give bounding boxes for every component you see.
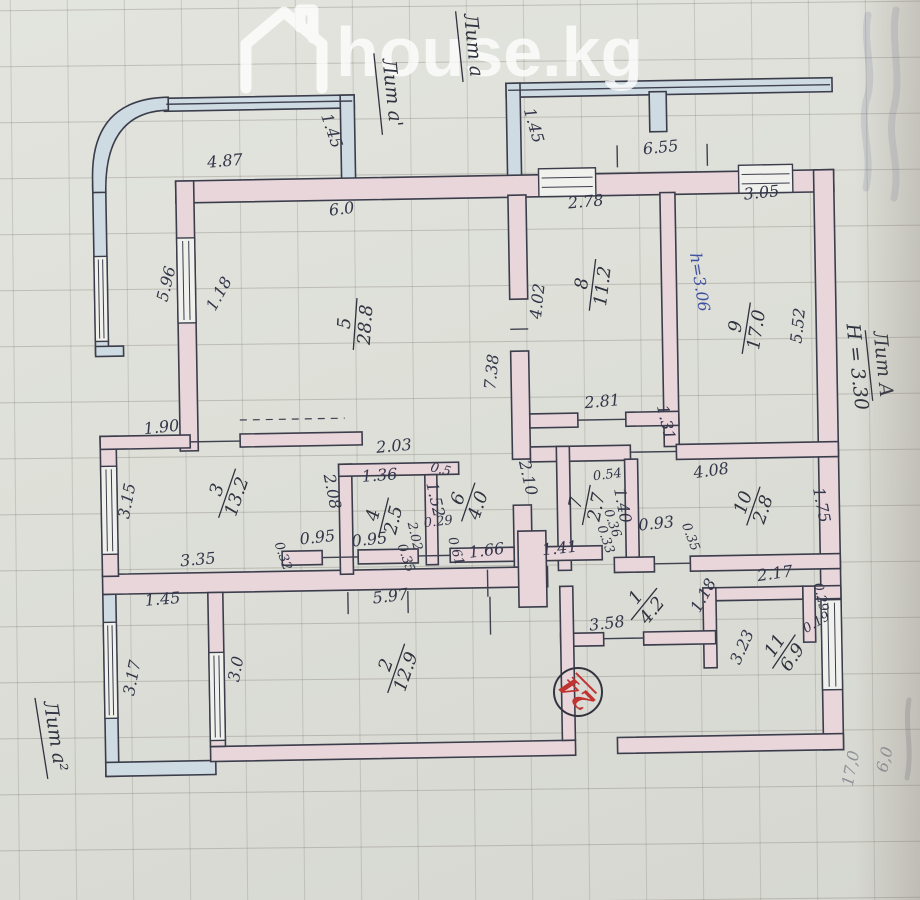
dimension-label: 5.52 [786,307,809,344]
room-number: 4 [362,507,385,524]
stamp: 24 [554,668,602,717]
dimension-label: 1.90 [143,416,180,439]
room-area: 28.8 [354,304,378,346]
ruled-line [0,841,920,851]
wall [508,195,528,299]
dimension-label: 0.35 [678,521,702,553]
detail-line [322,557,358,558]
room-area: 11.2 [590,265,616,307]
wall [560,586,576,740]
ruled-line [0,225,920,235]
dimension-label: 3.23 [726,627,758,667]
dimension-label: 3.35 [179,548,216,570]
dimension-label: 0.95 [299,526,336,549]
ruled-line [0,281,920,291]
watermark: house.kg [246,10,643,91]
balcony-wall [95,346,123,356]
dimension-label: 6.55 [642,136,679,159]
dimension-label: 7.38 [480,353,503,390]
curved-balcony-wall [91,97,170,192]
dimension-label: 4.87 [205,150,244,172]
dimension-label: 5.96 [153,264,180,303]
room-area: 4.0 [463,489,493,524]
room-number: 8 [571,277,593,291]
dimension-label: 5.97 [371,584,409,607]
detail-line [604,638,644,639]
wall [511,351,531,459]
dimension-label: 6.0 [328,198,356,220]
ruled-line [0,393,920,403]
window [94,256,108,341]
detail-line [490,597,491,635]
detail-line [630,451,676,452]
ruled-line [466,0,476,900]
wall [176,170,834,203]
dimension-label: 2.03 [374,435,412,457]
ruled-line [0,505,920,515]
room-number: 7 [565,495,588,511]
room-number: 5 [334,317,356,330]
ruled-line [238,0,248,900]
dashed-line [240,418,345,420]
dimension-label: 0.93 [637,512,674,535]
dimension-label: 3.17 [119,658,145,697]
wall [715,586,803,601]
dimension-label: 2.81 [583,390,621,412]
ruled-line [295,0,305,900]
detail-line [190,441,240,442]
litera-label: Лит а² [35,694,73,779]
dimension-label: 4.08 [691,458,730,482]
window [177,238,196,323]
detail-line [418,555,450,556]
room-label: 811.2 [568,256,616,313]
height-note: h=3.06 [686,251,714,313]
dimension-label: 4.02 [526,282,549,320]
balcony-wall [649,92,667,132]
floor-plan-drawing [91,78,844,777]
dimension-label: 0.61 [444,535,466,567]
dimension-label: 3.58 [588,612,626,635]
detail-line [578,419,626,420]
wall [210,740,575,761]
balcony-wall [106,760,216,776]
dimension-label: 2.10 [515,457,542,497]
room-area: 12.9 [390,649,423,694]
wall [617,734,843,754]
dimension-label: 1.41 [541,537,578,560]
room-number: 9 [725,319,748,334]
dimension-label: 1.45 [520,106,548,145]
litera-text: Лит а² [39,698,72,773]
ruled-line [10,0,20,900]
dimension-label: 3.05 [743,181,780,204]
dimension-label: 1.45 [144,588,181,610]
wall [614,557,654,573]
scanned-floor-plan-page: house.kg 1.454.876.01.456.552.783.055.96… [0,0,920,900]
dimension-label: 3.15 [114,482,139,521]
dimension-label: 0.54 [592,466,623,484]
ruled-line [0,785,920,795]
ruled-line [0,337,920,347]
ruled-line [0,1,920,11]
detail-line [654,563,690,564]
window [103,622,118,718]
page-edge-shadow [855,0,920,900]
dimension-label: 2.17 [755,561,795,585]
ruled-line [637,0,647,900]
dimension-label: 0.29 [423,513,453,531]
balcony-wall [506,83,522,177]
ruled-line [0,617,920,627]
room-area: 2.5 [380,504,408,538]
wall [240,432,362,447]
room-label: 917.0 [721,299,771,357]
main-walls [96,170,844,764]
wall [530,445,630,462]
dimension-label: 1.18 [202,273,236,313]
room-label: 313.2 [199,462,256,525]
wall [530,413,578,428]
dimension-label: 2.78 [566,190,604,212]
wall [644,631,716,645]
room-label: 102.8 [727,480,780,532]
window [209,652,226,740]
house-icon [246,10,322,88]
dimension-label: 3.0 [224,655,248,684]
room-area: 17.0 [743,308,770,351]
floor-plan-scan: house.kg 1.454.876.01.456.552.783.055.96… [0,0,920,900]
wall [676,442,838,460]
dimension-label: 1.36 [361,464,398,485]
